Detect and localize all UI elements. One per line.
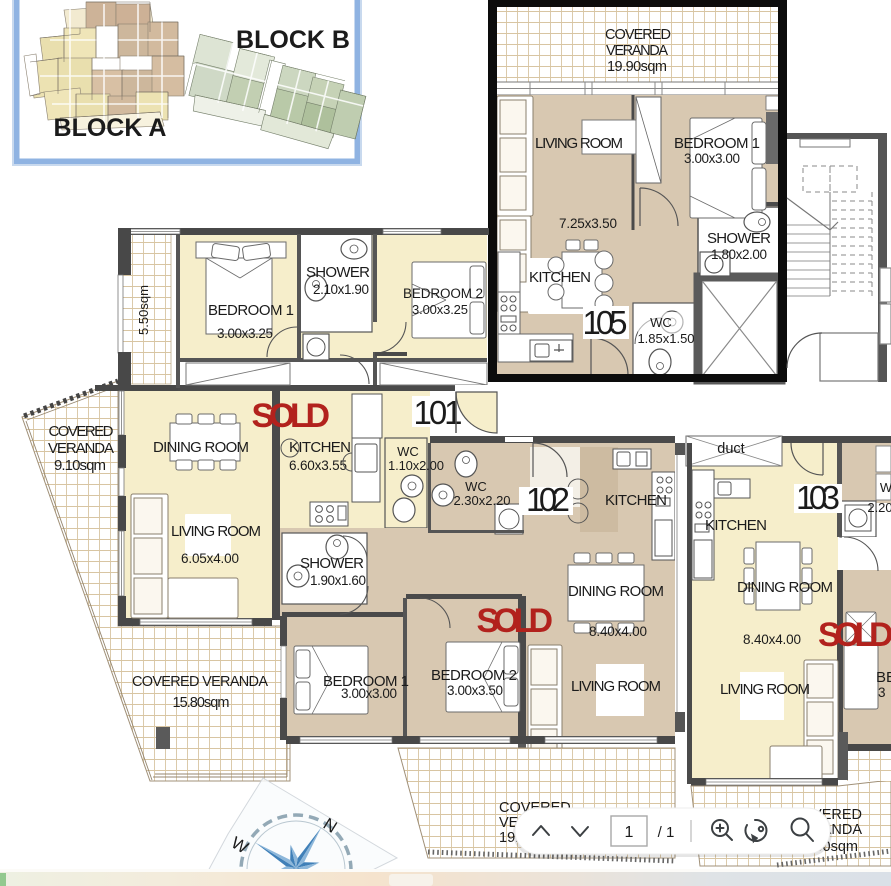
svg-text:1.85x1.50: 1.85x1.50	[637, 331, 694, 346]
svg-text:1: 1	[625, 824, 634, 841]
svg-text:KITCHEN: KITCHEN	[705, 517, 767, 534]
svg-text:3.00x3.25: 3.00x3.25	[412, 302, 468, 317]
svg-text:KITCHEN: KITCHEN	[289, 439, 351, 456]
svg-text:KITCHEN: KITCHEN	[605, 492, 667, 509]
svg-text:BEDROOM 1: BEDROOM 1	[674, 135, 760, 152]
svg-text:LIVING ROOM: LIVING ROOM	[571, 678, 661, 695]
svg-text:3.00x3.25: 3.00x3.25	[217, 326, 273, 341]
svg-text:105: 105	[583, 304, 628, 341]
svg-text:WC: WC	[397, 444, 419, 459]
svg-text:BLOCK B: BLOCK B	[236, 26, 350, 54]
svg-text:SHOWER: SHOWER	[306, 264, 370, 281]
svg-text:3.00x3.00: 3.00x3.00	[341, 686, 397, 701]
svg-text:SOLD: SOLD	[477, 602, 554, 640]
svg-text:1.10x2.00: 1.10x2.00	[388, 458, 444, 473]
svg-text:LIVING ROOM: LIVING ROOM	[171, 523, 261, 540]
svg-text:COVERED: COVERED	[49, 423, 114, 440]
svg-text:101: 101	[414, 394, 463, 431]
svg-text:2.10x1.90: 2.10x1.90	[313, 282, 369, 297]
svg-text:DINING ROOM: DINING ROOM	[568, 583, 664, 600]
svg-text:19.90sqm: 19.90sqm	[607, 59, 667, 75]
svg-text:6.60x3.55: 6.60x3.55	[289, 458, 347, 473]
svg-text:VERANDA: VERANDA	[48, 440, 114, 457]
svg-text:COVERED VERANDA: COVERED VERANDA	[132, 674, 268, 690]
svg-text:5.50sqm: 5.50sqm	[136, 285, 151, 335]
svg-text:COVERED: COVERED	[605, 27, 671, 43]
svg-text:9.10sqm: 9.10sqm	[54, 457, 106, 474]
svg-text:LIVING ROOM: LIVING ROOM	[720, 681, 810, 698]
svg-text:102: 102	[526, 481, 570, 518]
svg-text:KITCHEN: KITCHEN	[529, 269, 591, 286]
svg-text:6.05x4.00: 6.05x4.00	[181, 551, 239, 566]
svg-text:WC: WC	[465, 479, 487, 494]
svg-text:3.00x3.00: 3.00x3.00	[684, 151, 740, 166]
svg-text:SHOWER: SHOWER	[707, 230, 771, 247]
svg-text:BEDROOM 2: BEDROOM 2	[431, 667, 517, 684]
svg-text:7.25x3.50: 7.25x3.50	[559, 216, 617, 231]
svg-text:3: 3	[878, 685, 886, 700]
svg-text:BEDROOM 1: BEDROOM 1	[208, 302, 294, 319]
svg-text:WC: WC	[650, 315, 672, 330]
svg-text:SOLD: SOLD	[818, 616, 891, 654]
svg-text:2.20: 2.20	[867, 500, 891, 515]
svg-text:/ 1: / 1	[658, 824, 675, 841]
svg-text:103: 103	[796, 479, 840, 516]
svg-text:8.40x4.00: 8.40x4.00	[743, 632, 801, 647]
svg-text:SOLD: SOLD	[252, 397, 331, 435]
svg-text:BLOCK A: BLOCK A	[54, 114, 167, 142]
svg-text:1.80x2.00: 1.80x2.00	[711, 247, 767, 262]
svg-text:3.00x3.50: 3.00x3.50	[447, 683, 503, 698]
svg-text:BE: BE	[876, 669, 891, 686]
svg-text:DINING ROOM: DINING ROOM	[737, 579, 833, 596]
svg-text:BEDROOM 2: BEDROOM 2	[403, 286, 483, 301]
svg-text:DINING ROOM: DINING ROOM	[153, 439, 249, 456]
svg-text:duct: duct	[717, 441, 744, 457]
svg-text:15.80sqm: 15.80sqm	[173, 695, 230, 711]
svg-text:8.40x4.00: 8.40x4.00	[589, 624, 647, 639]
svg-text:2.30x2.20: 2.30x2.20	[453, 493, 510, 508]
svg-text:LIVING ROOM: LIVING ROOM	[535, 135, 623, 152]
svg-text:SHOWER: SHOWER	[300, 555, 364, 572]
svg-text:W: W	[880, 480, 891, 495]
svg-text:1.90x1.60: 1.90x1.60	[310, 573, 366, 588]
svg-text:VERANDA: VERANDA	[606, 43, 668, 59]
